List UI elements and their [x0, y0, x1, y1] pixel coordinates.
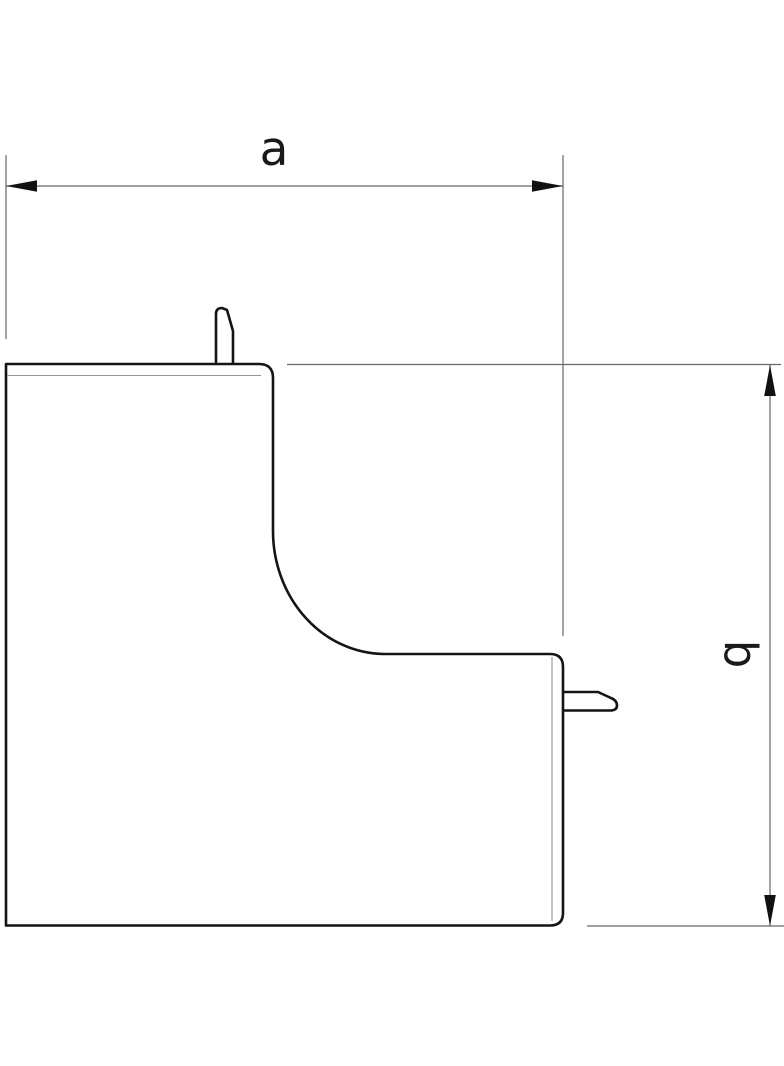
technical-dimension-drawing: a b	[0, 0, 784, 1066]
dimension-vertical: b	[287, 365, 784, 927]
dimension-label-b: b	[714, 640, 767, 669]
clip-tab-right	[563, 692, 617, 711]
arrowhead-left	[6, 180, 37, 192]
arrowhead-right	[532, 180, 563, 192]
part-outline	[6, 364, 563, 926]
clip-tab-top	[216, 308, 233, 364]
part-geometry	[6, 308, 617, 926]
drawing-canvas: a b	[0, 0, 784, 1066]
arrowhead-down	[764, 895, 776, 926]
arrowhead-up	[764, 365, 776, 396]
dimension-label-a: a	[260, 122, 289, 177]
dimension-horizontal: a	[6, 122, 563, 636]
